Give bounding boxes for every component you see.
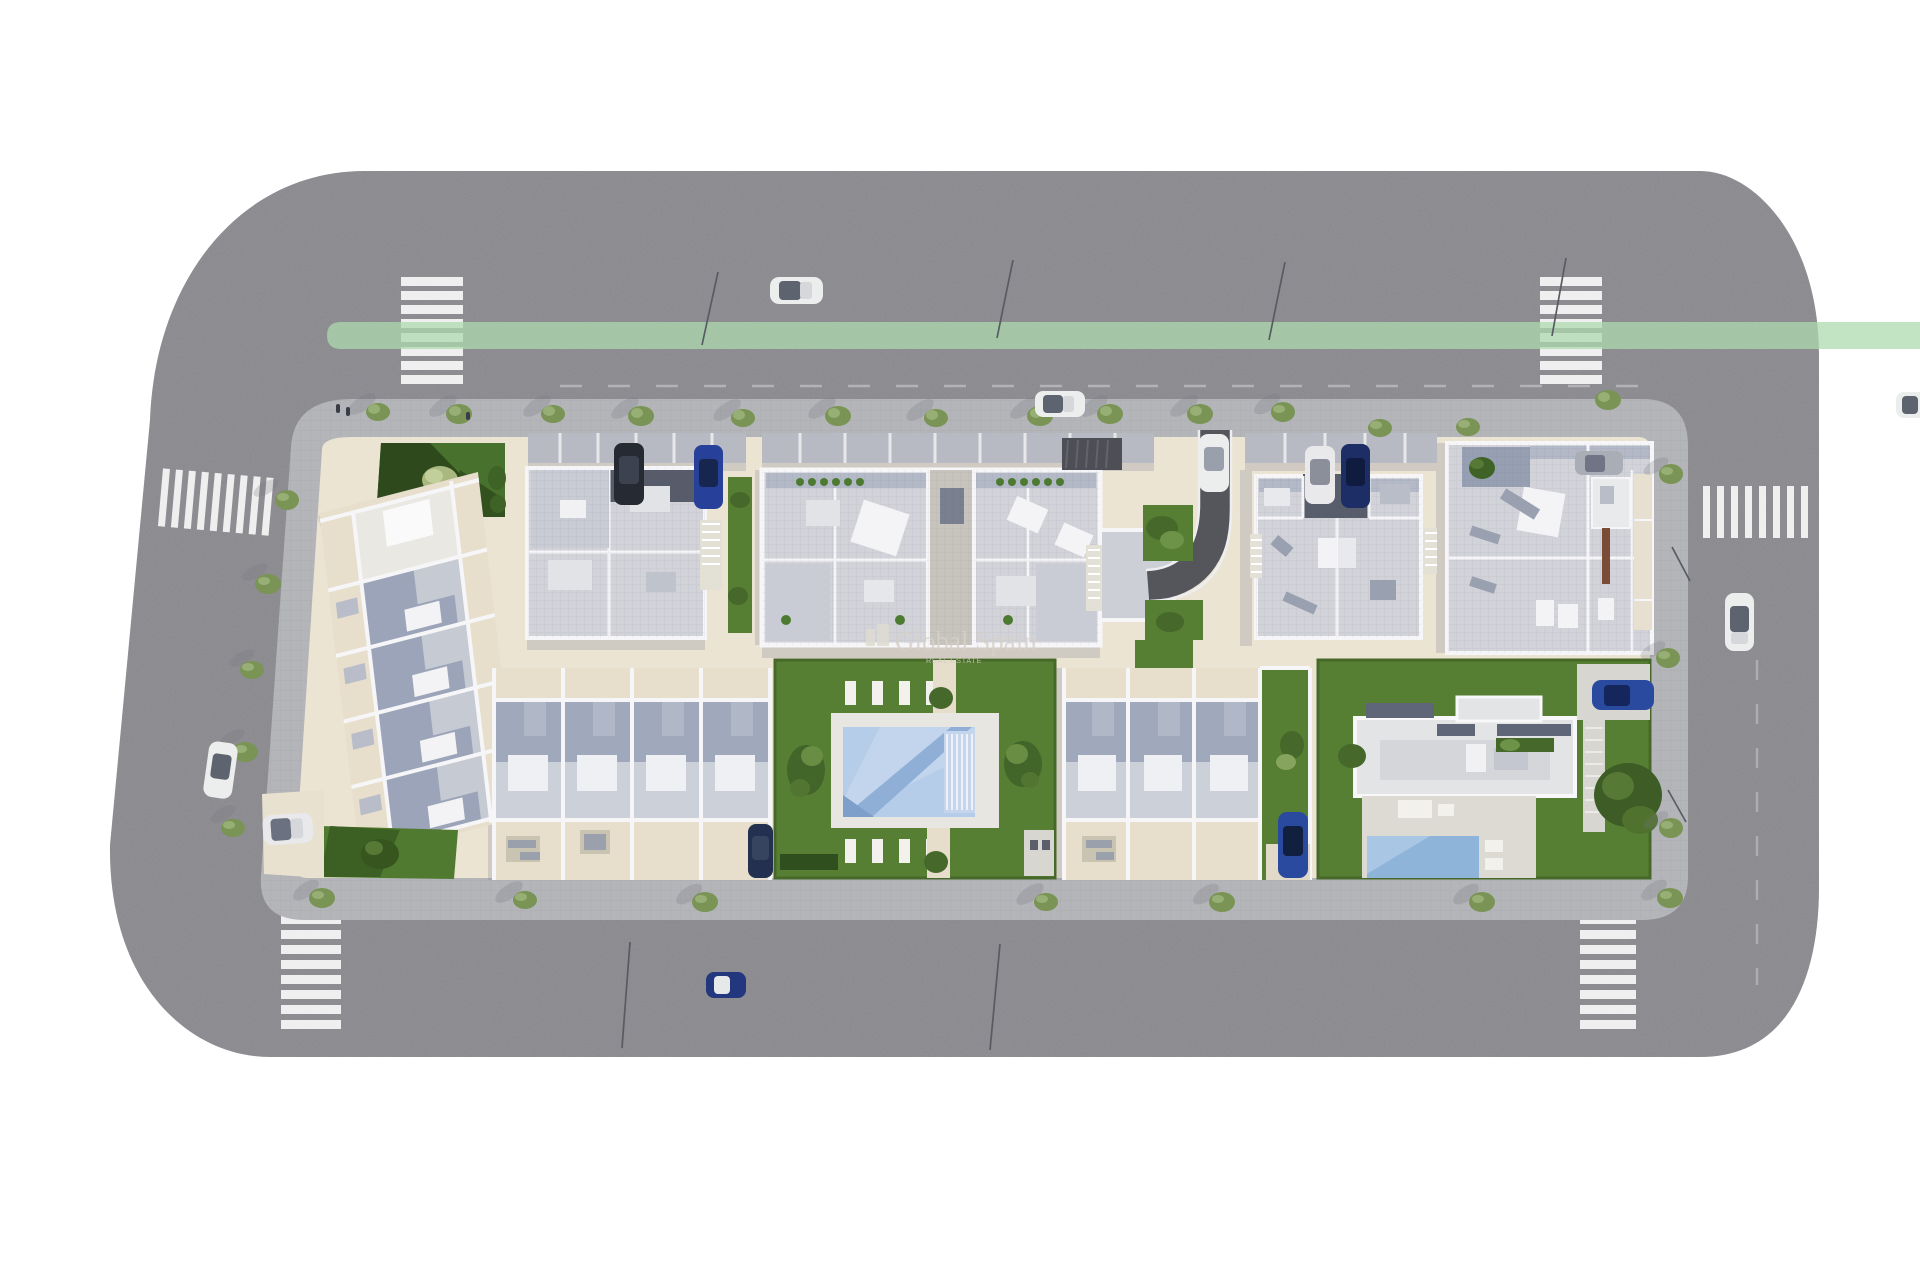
svg-text:REAL ESTATE: REAL ESTATE bbox=[926, 656, 982, 665]
svg-text:Global Spain: Global Spain bbox=[895, 626, 1037, 656]
